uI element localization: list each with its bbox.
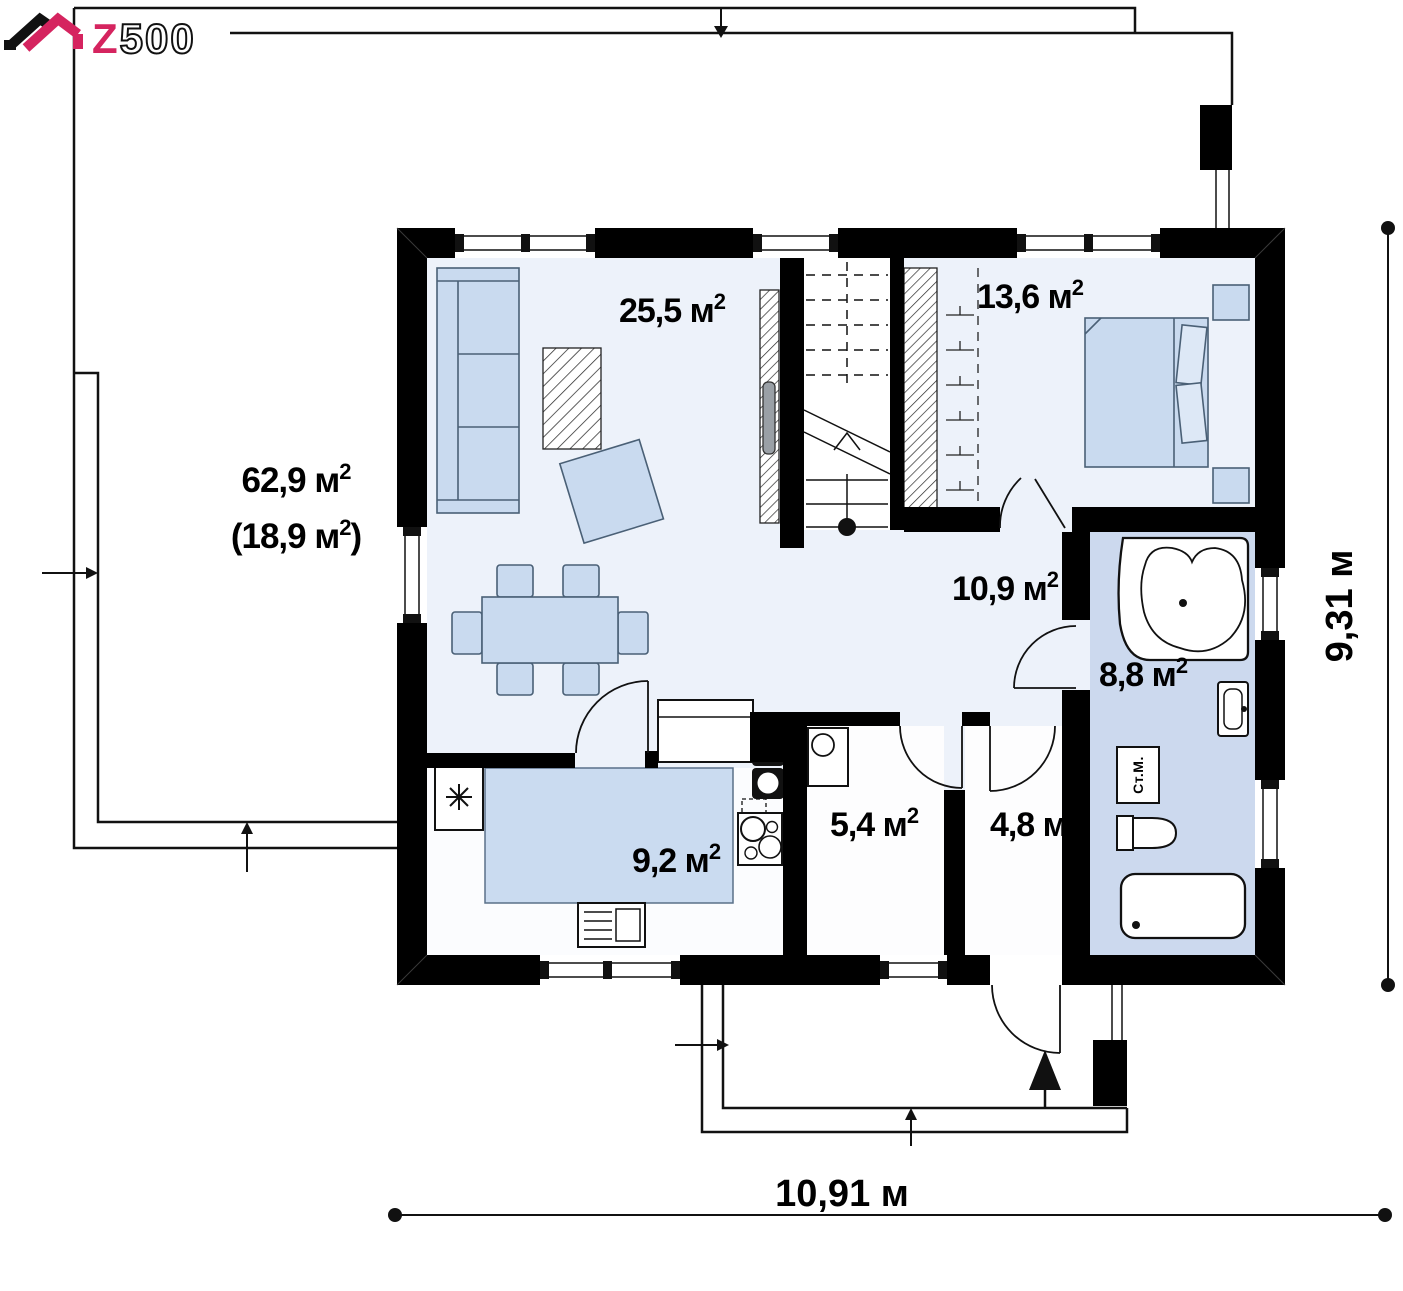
fridge bbox=[435, 762, 483, 830]
drain-icon bbox=[1179, 599, 1187, 607]
stairs-newel-post bbox=[838, 518, 856, 536]
chair bbox=[497, 663, 533, 695]
wall-bathroom-north bbox=[1072, 507, 1255, 532]
coffee-table bbox=[543, 348, 601, 449]
dining-table bbox=[482, 597, 618, 663]
chair bbox=[452, 612, 482, 654]
wall-stair-right bbox=[890, 258, 904, 530]
roof-outline bbox=[74, 8, 1232, 228]
wall-kitchen-east bbox=[783, 712, 807, 955]
washing-machine: Ст.М. bbox=[1117, 747, 1159, 803]
window-top-stairs bbox=[753, 228, 838, 258]
wall bbox=[1255, 228, 1285, 568]
entry-area-label: 4,8 м2 bbox=[990, 803, 1079, 844]
wall-bathroom-west bbox=[1062, 532, 1090, 620]
washing-machine-label: Ст.М. bbox=[1130, 756, 1146, 794]
wall-bedroom-south bbox=[904, 507, 1000, 532]
terrace-inner-line bbox=[74, 373, 397, 822]
media-wall-unit bbox=[760, 290, 779, 523]
hall-area-label: 10,9 м2 bbox=[952, 567, 1059, 608]
kitchen-area-label: 9,2 м2 bbox=[632, 839, 721, 880]
wall-door-post bbox=[645, 751, 658, 768]
nightstand bbox=[1213, 468, 1249, 503]
door-entrance bbox=[992, 985, 1060, 1053]
window-left-living bbox=[397, 527, 427, 623]
terrace-area-label: 62,9 м2 bbox=[242, 459, 352, 500]
wall-pier bbox=[962, 712, 990, 726]
kitchen-zone bbox=[485, 768, 733, 903]
terrace-outer-line bbox=[74, 8, 397, 848]
entrance-arrow bbox=[1029, 1050, 1061, 1108]
chair bbox=[563, 663, 599, 695]
living-area-label: 25,5 м2 bbox=[619, 289, 726, 330]
window-bottom-utility bbox=[880, 955, 947, 985]
corner-bathtub bbox=[1119, 538, 1248, 660]
wall-utility-north bbox=[807, 712, 900, 726]
wall bbox=[397, 955, 540, 985]
chair bbox=[497, 565, 533, 597]
logo-roof-icon bbox=[4, 19, 83, 50]
porch-pillar bbox=[1093, 1040, 1127, 1106]
wall bbox=[1062, 955, 1285, 985]
peninsula-counter bbox=[658, 700, 753, 762]
logo: Z500 bbox=[4, 15, 196, 62]
toilet bbox=[1117, 816, 1176, 850]
roof-inner-line bbox=[230, 33, 1232, 105]
wall bbox=[1255, 640, 1285, 780]
porch-inner-line bbox=[723, 985, 1127, 1108]
window-top-living bbox=[455, 228, 595, 258]
boiler bbox=[808, 728, 848, 786]
window-bottom-kitchen bbox=[540, 955, 680, 985]
dimension-width: 10,91 м bbox=[388, 1173, 1392, 1222]
pillow bbox=[1176, 383, 1207, 443]
window-right-bathroom-top bbox=[1255, 568, 1285, 640]
terrace-covered-area-label: (18,9 м2) bbox=[231, 515, 361, 556]
utility-area-label: 5,4 м2 bbox=[830, 803, 919, 844]
porch-arrow-bottom bbox=[905, 1108, 917, 1146]
height-dimension-label: 9,31 м bbox=[1319, 550, 1361, 663]
wall bbox=[397, 228, 427, 527]
wall bbox=[838, 228, 1017, 258]
wall-kitchen-corner bbox=[750, 712, 783, 762]
terrace bbox=[42, 8, 397, 872]
logo-text: Z500 bbox=[92, 15, 196, 62]
wall-stair-left bbox=[780, 258, 804, 548]
nightstand bbox=[1213, 285, 1249, 320]
wall bbox=[680, 955, 880, 985]
drain-icon bbox=[1132, 921, 1140, 929]
dimension-height: 9,31 м bbox=[1319, 221, 1395, 992]
wall-kitchen-north bbox=[427, 753, 575, 768]
wall bbox=[595, 228, 753, 258]
tv-icon bbox=[763, 382, 775, 454]
window-right-bathroom-bottom bbox=[1255, 780, 1285, 868]
chair bbox=[563, 565, 599, 597]
bathtub bbox=[1121, 874, 1245, 938]
chair bbox=[618, 612, 648, 654]
roof-pillar bbox=[1200, 105, 1232, 170]
faucet-icon bbox=[1241, 706, 1247, 712]
pillow bbox=[1176, 325, 1207, 385]
terrace-arrow-left bbox=[42, 567, 98, 579]
bathroom-area-label: 8,8 м2 bbox=[1099, 653, 1188, 694]
washbasin bbox=[1218, 682, 1248, 736]
floor-plan: Ст.М. bbox=[0, 0, 1403, 1291]
window-top-bedroom bbox=[1017, 228, 1160, 258]
roof-outer-line bbox=[74, 8, 1135, 33]
wall bbox=[397, 623, 427, 985]
porch-outer-line bbox=[702, 985, 1127, 1132]
width-dimension-label: 10,91 м bbox=[775, 1173, 909, 1215]
stove bbox=[738, 813, 782, 865]
bedroom-area-label: 13,6 м2 bbox=[977, 275, 1084, 316]
floor-plan-page: Ст.М. bbox=[0, 0, 1403, 1291]
wall bbox=[947, 955, 990, 985]
sofa bbox=[437, 268, 519, 513]
lower-cabinet bbox=[578, 903, 645, 947]
wall-utility-entry-divider bbox=[944, 790, 965, 955]
